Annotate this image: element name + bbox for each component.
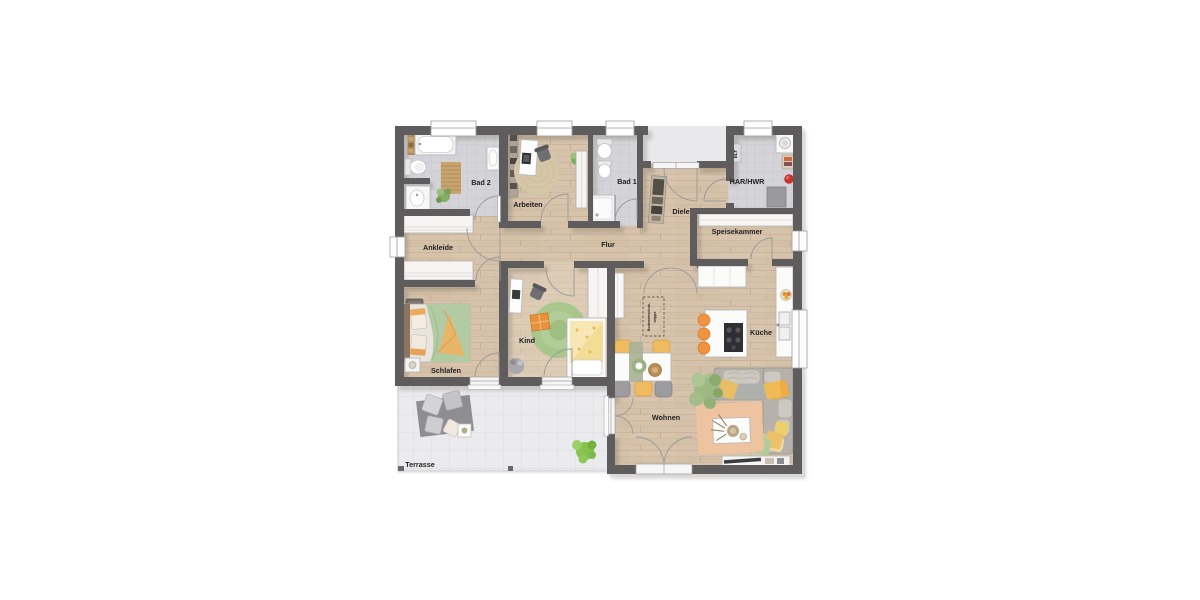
svg-text:Arbeiten: Arbeiten xyxy=(513,200,542,209)
svg-text:HAR/HWR: HAR/HWR xyxy=(730,177,766,186)
svg-text:Küche: Küche xyxy=(750,328,772,337)
svg-text:Schlafen: Schlafen xyxy=(431,366,461,375)
svg-text:Terrasse: Terrasse xyxy=(405,460,434,469)
svg-text:ELT: ELT xyxy=(733,150,738,158)
svg-text:treppe: treppe xyxy=(653,312,657,323)
svg-text:Kind: Kind xyxy=(519,336,535,345)
svg-text:Bodeneinschub-: Bodeneinschub- xyxy=(647,302,651,331)
svg-text:Diele: Diele xyxy=(672,207,689,216)
svg-text:Bad 1: Bad 1 xyxy=(617,177,637,186)
svg-text:Speisekammer: Speisekammer xyxy=(712,227,763,236)
svg-text:Flur: Flur xyxy=(601,240,615,249)
svg-text:Bad 2: Bad 2 xyxy=(471,178,491,187)
svg-text:Wohnen: Wohnen xyxy=(652,413,680,422)
svg-text:Ankleide: Ankleide xyxy=(423,243,453,252)
